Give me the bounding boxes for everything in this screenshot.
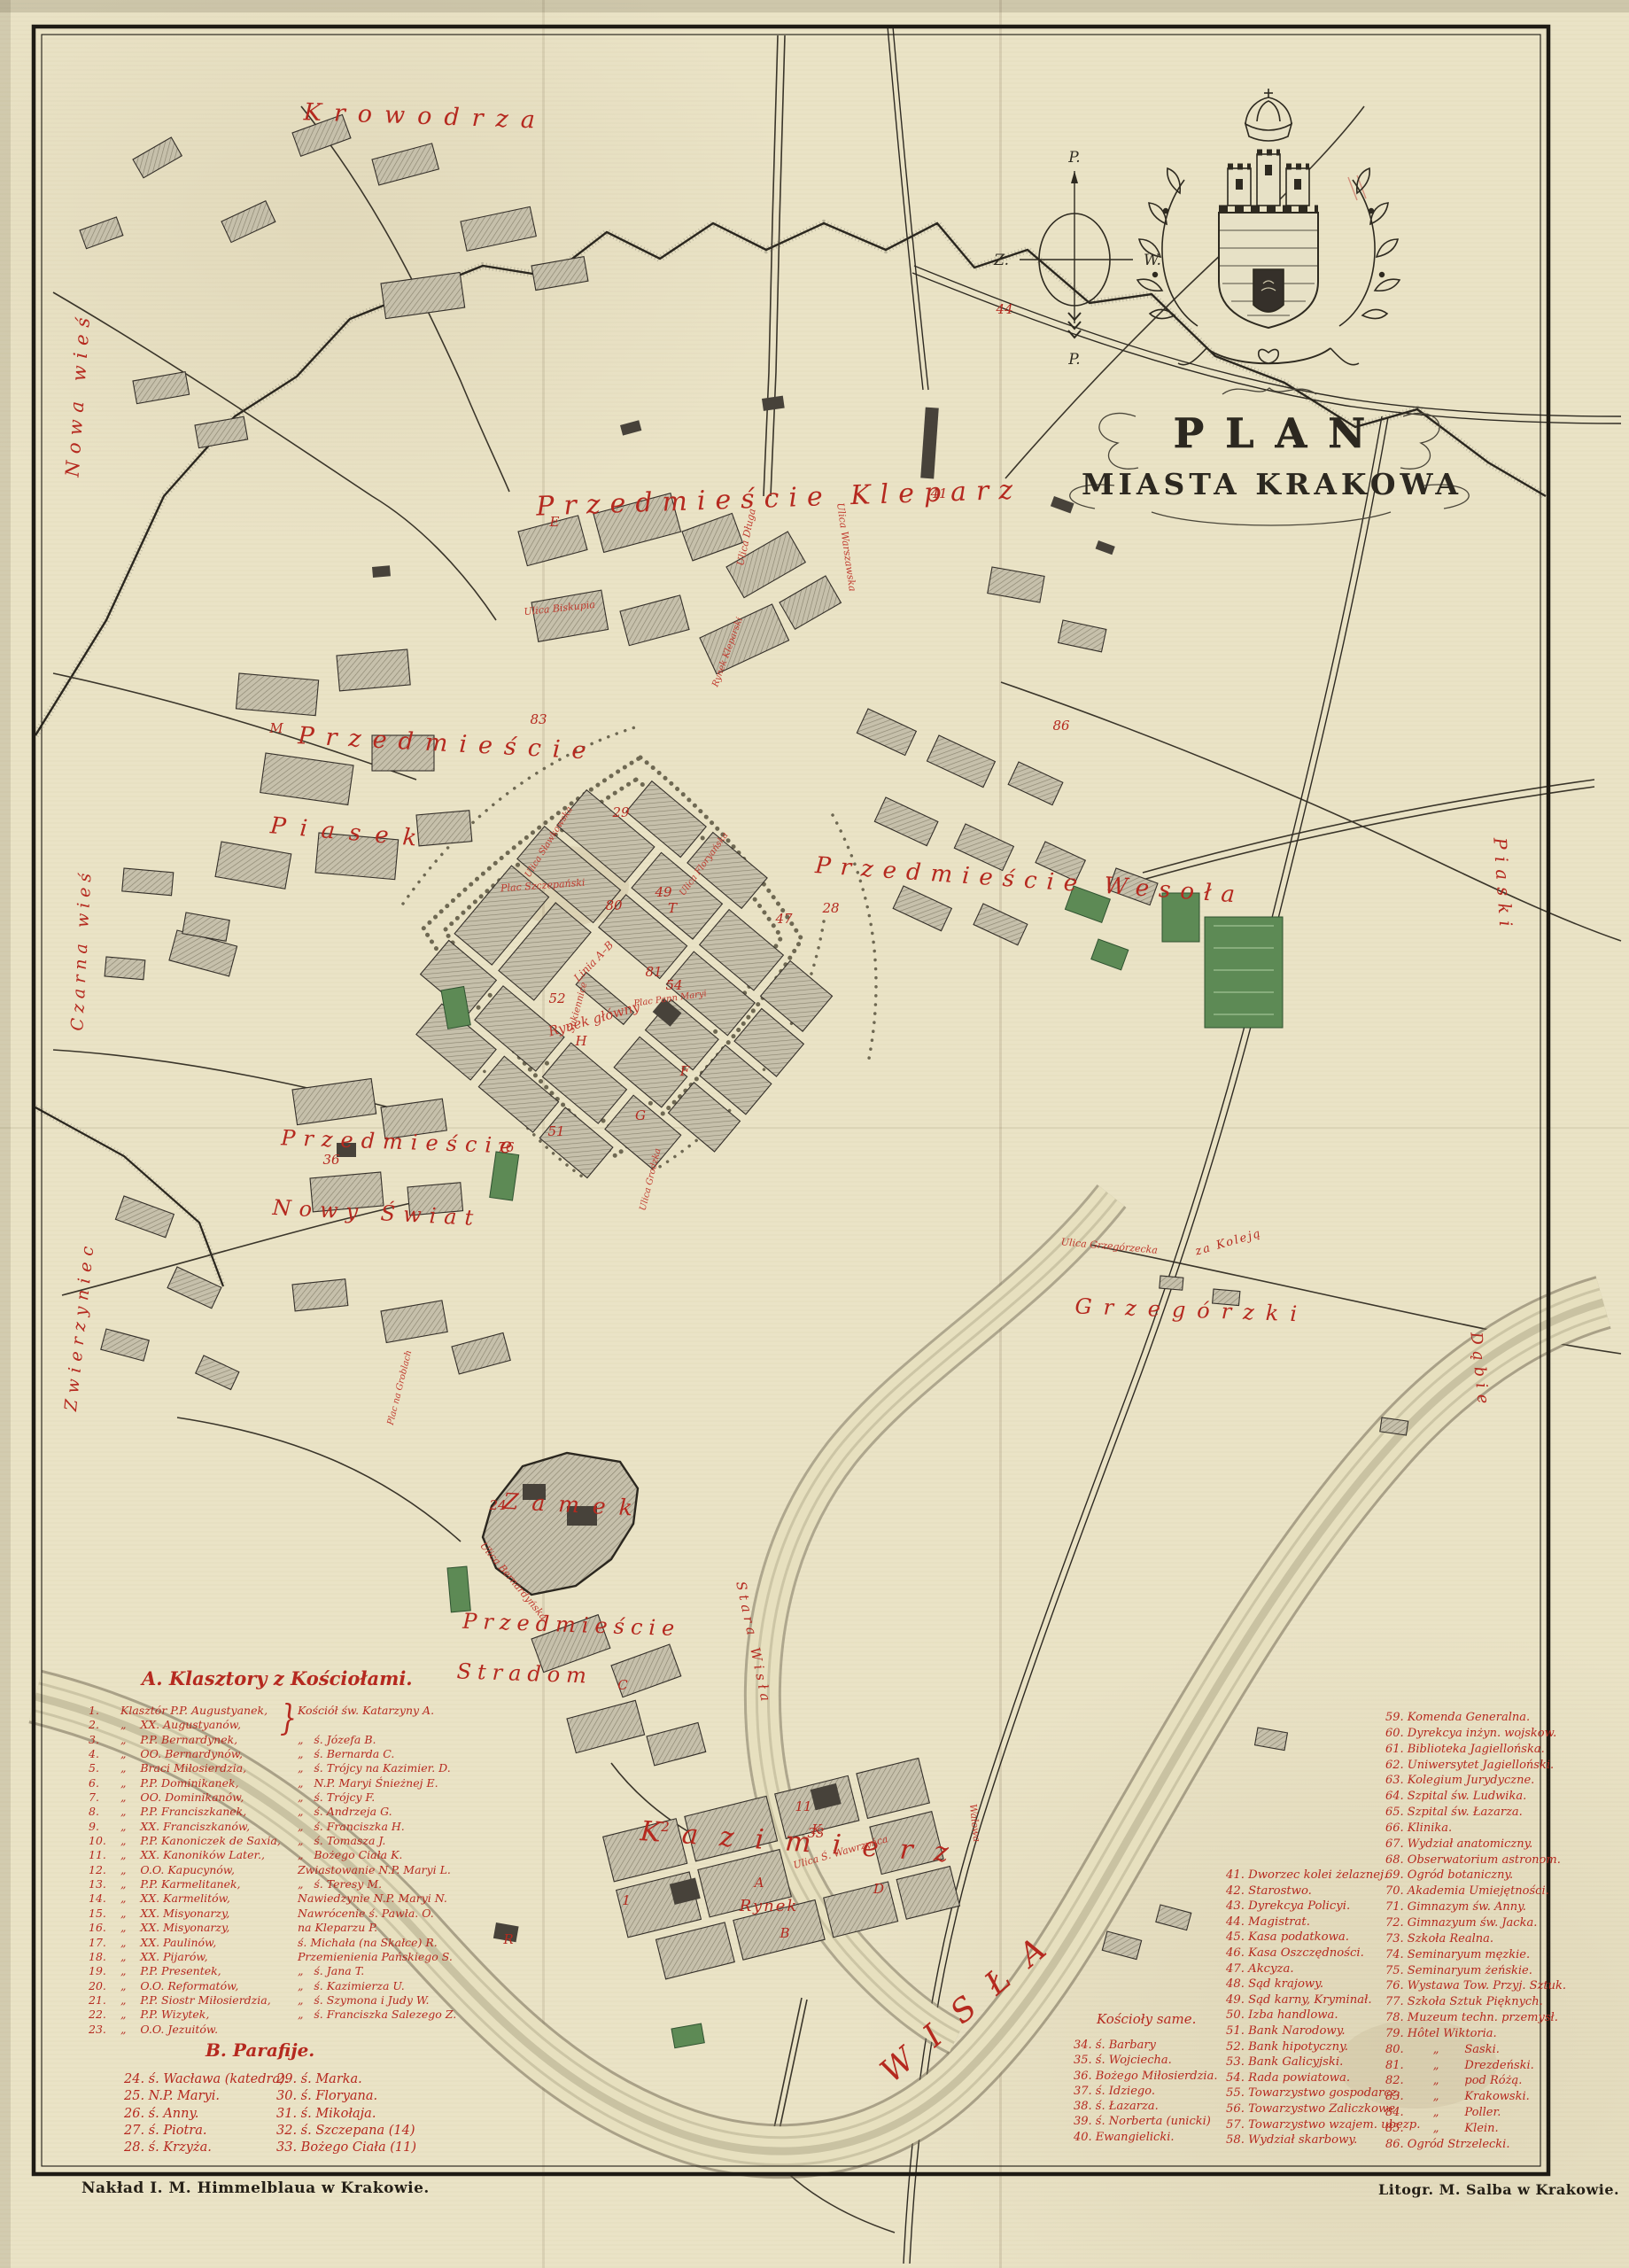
- legend-row-convent: „ O.O. Jezuitów.: [120, 2023, 298, 2037]
- legend-row-convent: „ P.P. Siostr Miłosierdzia,: [120, 1993, 298, 2008]
- legend-row-number: 11.: [89, 1848, 120, 1862]
- legend-item: 29. ś. Marka.: [276, 2071, 416, 2088]
- mark: A: [753, 1875, 764, 1891]
- ribbon-bow: [1178, 348, 1359, 365]
- label-wesola: Przedmieście Wesoła: [813, 852, 1245, 909]
- legend-row-convent: „ OO. Dominikanów,: [120, 1790, 298, 1805]
- legend-item: 61. Biblioteka Jagiellońska.: [1385, 1742, 1566, 1758]
- legend-row: 3. „ P.P. Bernardynek, „ ś. Józefa B.: [89, 1733, 456, 1747]
- legend-row: 16. „ XX. Misyonarzy, na Kleparzu P.: [89, 1921, 456, 1935]
- legend-row: 6. „ P.P. Dominikanek, „ N.P. Maryi Śnie…: [89, 1776, 456, 1790]
- legend-row-convent: „ OO. Bernardynów,: [120, 1747, 298, 1761]
- legend-a-title: A. Klasztory z Kościołami.: [142, 1667, 413, 1689]
- legend-item: 26. ś. Anny.: [124, 2106, 289, 2123]
- legend-row-convent: „ P.P. Kanoniczek de Saxia,: [120, 1834, 298, 1848]
- legend-item: 35. ś. Wojciecha.: [1074, 2053, 1217, 2068]
- imprint-publisher: Nakład I. M. Himmelblaua w Krakowie.: [81, 2179, 430, 2197]
- label-zwierzyniec: Zwierzyniec: [61, 1239, 98, 1413]
- legend-row-convent: „ XX. Karmelitów,: [120, 1891, 298, 1906]
- legend-row: 17. „ XX. Paulinów, ś. Michała (na Skałc…: [89, 1936, 456, 1950]
- legend-row: 21. „ P.P. Siostr Miłosierdzia, „ ś. Szy…: [89, 1993, 456, 2008]
- legend-item: 34. ś. Barbary: [1074, 2038, 1217, 2053]
- label-kleparz: Przedmieście Kleparz: [535, 474, 1023, 522]
- shield: [1219, 152, 1318, 328]
- legend-row-convent: „ P.P. Wizytek,: [120, 2008, 298, 2022]
- legend-row: 11. „ XX. Kanoników Later., „ Bożego Cia…: [89, 1848, 456, 1862]
- legend-row-number: 7.: [89, 1790, 120, 1805]
- legend-row-church: Przemienienia Pańskiego S.: [298, 1950, 456, 1964]
- legend-row: 15. „ XX. Misyonarzy, Nawrócenie ś. Pawł…: [89, 1907, 456, 1921]
- legend-item: 86. Ogród Strzelecki.: [1385, 2137, 1566, 2153]
- label-stradom-2: Stradom: [456, 1658, 593, 1688]
- legend-row-number: 23.: [89, 2023, 120, 2037]
- mark: 86: [1052, 718, 1070, 734]
- legend-row: 2. „ XX. Augustyanów,: [89, 1718, 456, 1732]
- legend-a-list: 1. Klasztór P.P. Augustyanek, Kościół św…: [89, 1704, 456, 2037]
- legend-row-number: 14.: [89, 1891, 120, 1906]
- legend-item: 37. ś. Idziego.: [1074, 2084, 1217, 2099]
- legend-row-number: 4.: [89, 1747, 120, 1761]
- mark: 41: [929, 485, 947, 501]
- legend-row-church: na Kleparzu P.: [298, 1921, 456, 1935]
- legend-row-number: 16.: [89, 1921, 120, 1935]
- legend-item: 28. ś. Krzyża.: [124, 2140, 289, 2156]
- label-ul-warszawska: Ulica Warszawska: [834, 502, 858, 593]
- railway-station-building: [920, 408, 939, 479]
- legend-item: 25. N.P. Maryi.: [124, 2088, 289, 2105]
- legend-item: 74. Seminaryum męzkie.: [1385, 1947, 1566, 1963]
- compass-label-north: P.: [1067, 149, 1080, 167]
- legend-row-convent: „ XX. Franciszkanów,: [120, 1820, 298, 1834]
- label-przedmiescie-piasek: Przedmieście: [297, 722, 599, 765]
- label-plac-na-groblach: Plac na Groblach: [386, 1349, 415, 1427]
- mark: 1: [622, 1892, 631, 1908]
- label-nowa-wies: Nowa wieś: [61, 310, 94, 478]
- label-rynek-kazimierz: Rynek: [739, 1897, 799, 1915]
- label-grzegorzki: Grzegórzki: [1074, 1293, 1308, 1326]
- legend-row-convent: „ O.O. Kapucynów,: [120, 1863, 298, 1877]
- legend-item: 24. ś. Wacława (katedra).: [124, 2071, 289, 2088]
- institutions-list: 59. Komenda Generalna.60. Dyrekcya inżyn…: [1385, 1710, 1566, 2153]
- mark: C: [617, 1677, 628, 1693]
- legend-row-church: Zwiastowanie N.P. Maryi L.: [298, 1863, 456, 1877]
- compass-label-west: Z.: [993, 252, 1009, 269]
- legend-item: 75. Seminaryum żeńskie.: [1385, 1963, 1566, 1979]
- legend-row: 1. Klasztór P.P. Augustyanek, Kościół św…: [89, 1704, 456, 1718]
- legend-row-convent: „ XX. Misyonarzy,: [120, 1921, 298, 1935]
- legend-row: 20. „ O.O. Reformatów, „ ś. Kazimierza U…: [89, 1979, 456, 1993]
- legend-row-church: Kościół św. Katarzyny A.: [298, 1704, 456, 1718]
- legend-row-convent: „ P.P. Dominikanek,: [120, 1776, 298, 1790]
- legend-row-church: „ ś. Trójcy F.: [298, 1790, 456, 1805]
- legend-row-church: „ ś. Szymona i Judy W.: [298, 1993, 456, 2008]
- legend-item: 77. Szkoła Sztuk Pięknych.: [1385, 1994, 1566, 2010]
- mark: 29: [611, 804, 630, 820]
- legend-row-number: 3.: [89, 1733, 120, 1747]
- legend-b-col1: 24. ś. Wacława (katedra).25. N.P. Maryi.…: [124, 2071, 289, 2156]
- legend-item: 79. Hôtel Wiktoria.: [1385, 2026, 1566, 2042]
- legend-row-number: 8.: [89, 1805, 120, 1819]
- label-za-koleja: za Koleją: [1193, 1227, 1264, 1259]
- legend-row: 9. „ XX. Franciszkanów, „ ś. Franciszka …: [89, 1820, 456, 1834]
- legend-item: 36. Bożego Miłosierdzia.: [1074, 2069, 1217, 2084]
- legend-row-number: 22.: [89, 2008, 120, 2022]
- legend-row-convent: „ O.O. Reformatów,: [120, 1979, 298, 1993]
- legend-row-church: „ N.P. Maryi Śnieżnej E.: [298, 1776, 456, 1790]
- legend-item: 81. „ Drezdeński.: [1385, 2058, 1566, 2074]
- legend-row: 22. „ P.P. Wizytek, „ ś. Franciszka Sale…: [89, 2008, 456, 2022]
- legend-row: 14. „ XX. Karmelitów, Nawiedzynie N.P. M…: [89, 1891, 456, 1906]
- legend-row-church: „ ś. Bernarda C.: [298, 1747, 456, 1761]
- legend-row-church: „ ś. Teresy M.: [298, 1877, 456, 1891]
- legend-item: 85. „ Klein.: [1385, 2121, 1566, 2137]
- legend-item: 33. Bożego Ciała (11): [276, 2140, 416, 2156]
- legend-row-number: 20.: [89, 1979, 120, 1993]
- legend-item: 80. „ Saski.: [1385, 2042, 1566, 2058]
- legend-row: 13. „ P.P. Karmelitanek, „ ś. Teresy M.: [89, 1877, 456, 1891]
- legend-row-church: „ ś. Trójcy na Kazimier. D.: [298, 1761, 456, 1775]
- legend-item: 32. ś. Szczepana (14): [276, 2123, 416, 2140]
- legend-row-church: „ ś. Franciszka Salezego Z.: [298, 2008, 456, 2022]
- mark: R: [502, 1931, 513, 1947]
- legend-item: 76. Wystawa Tow. Przyj. Sztuk.: [1385, 1978, 1566, 1994]
- legend-row-church: „ Bożego Ciała K.: [298, 1848, 456, 1862]
- legend-row-convent: „ Braci Miłosierdzia,: [120, 1761, 298, 1775]
- legend-item: 67. Wydział anatomiczny.: [1385, 1837, 1566, 1852]
- legend-row-church: [298, 2023, 456, 2037]
- legend-row-number: 18.: [89, 1950, 120, 1964]
- mark: 81: [645, 964, 662, 980]
- legend-row-church: Nawrócenie ś. Pawła. O.: [298, 1907, 456, 1921]
- mark: 24: [488, 1497, 506, 1513]
- map-title: PLAN: [1174, 409, 1387, 457]
- legend-item: 40. Ewangielicki.: [1074, 2130, 1217, 2145]
- legend-row-number: 12.: [89, 1863, 120, 1877]
- legend-item: 63. Kolegium Jurydyczne.: [1385, 1773, 1566, 1789]
- legend-row-number: 6.: [89, 1776, 120, 1790]
- mark: M: [268, 720, 283, 736]
- mark: 47: [774, 911, 793, 927]
- label-ul-walowa: Wałowa: [967, 1804, 982, 1843]
- legend-row-convent: „ P.P. Franciszkanek,: [120, 1805, 298, 1819]
- legend-row-church: Nawiedzynie N.P. Maryi N.: [298, 1891, 456, 1906]
- legend-row-convent: „ XX. Kanoników Later.,: [120, 1848, 298, 1862]
- label-czarna-wies: Czarna wieś: [67, 867, 96, 1031]
- label-przedmiescie-2: Przedmieście: [280, 1125, 521, 1158]
- crown-icon: [1245, 89, 1292, 141]
- legend-row-convent: „ P.P. Karmelitanek,: [120, 1877, 298, 1891]
- legend-item: 82. „ pod Różą.: [1385, 2073, 1566, 2089]
- mark: D: [873, 1881, 884, 1897]
- legend-item: 39. ś. Norberta (unicki): [1074, 2114, 1217, 2129]
- legend-item: 31. ś. Mikołaja.: [276, 2106, 416, 2123]
- legend-row-number: 9.: [89, 1820, 120, 1834]
- legend-item: 66. Klinika.: [1385, 1821, 1566, 1837]
- compass-rose: P. Z. W. P.: [993, 149, 1161, 369]
- legend-row: 18. „ XX. Pijarów, Przemienienia Pańskie…: [89, 1950, 456, 1964]
- legend-item: 84. „ Poller.: [1385, 2105, 1566, 2121]
- title-block: PLAN MIASTA KRAKOWA: [1070, 388, 1470, 525]
- koscioly-list: 34. ś. Barbary35. ś. Wojciecha.36. Bożeg…: [1074, 2038, 1217, 2145]
- legend-row-church: ś. Michała (na Skałce) R.: [298, 1936, 456, 1950]
- legend-b-title: B. Parafije.: [206, 2039, 314, 2061]
- wesola-blocks: [857, 709, 1158, 945]
- mark: 80: [605, 897, 623, 913]
- legend-row: 5. „ Braci Miłosierdzia, „ ś. Trójcy na …: [89, 1761, 456, 1775]
- legend-row-number: 21.: [89, 1993, 120, 2008]
- gate-with-eagle: [1253, 269, 1284, 312]
- legend-row-convent: „ XX. Paulinów,: [120, 1936, 298, 1950]
- legend-row-church: „ ś. Kazimierza U.: [298, 1979, 456, 1993]
- legend-row-number: 10.: [89, 1834, 120, 1848]
- legend-item: 62. Uniwersytet Jagielloński.: [1385, 1758, 1566, 1774]
- mark: 28: [821, 900, 839, 916]
- mark: G: [635, 1107, 646, 1123]
- legend-row-church: „ ś. Andrzeja G.: [298, 1805, 456, 1819]
- legend-row: 7. „ OO. Dominikanów, „ ś. Trójcy F.: [89, 1790, 456, 1805]
- mark: 52: [548, 990, 565, 1006]
- compass-label-south: P.: [1067, 351, 1080, 369]
- compass-north-arrow: [1071, 171, 1078, 183]
- imprint-lithographer: Litogr. M. Salba w Krakowie.: [1378, 2181, 1619, 2198]
- mark: T: [668, 900, 678, 916]
- legend-item: 64. Szpital św. Ludwika.: [1385, 1789, 1566, 1805]
- mark: 11: [795, 1798, 811, 1814]
- mark: 44: [995, 301, 1012, 317]
- legend-row: 10. „ P.P. Kanoniczek de Saxia, „ ś. Tom…: [89, 1834, 456, 1848]
- legend-row-church: „ ś. Jana T.: [298, 1964, 456, 1978]
- mark: 54: [665, 977, 682, 993]
- legend-item: 30. ś. Floryana.: [276, 2088, 416, 2105]
- legend-item: 59. Komenda Generalna.: [1385, 1710, 1566, 1726]
- legend-row-church: „ ś. Franciszka H.: [298, 1820, 456, 1834]
- koscioly-title: Kościoły same.: [1097, 2011, 1196, 2027]
- legend-item: 78. Muzeum techn. przemysł.: [1385, 2010, 1566, 2026]
- legend-row: 23. „ O.O. Jezuitów.: [89, 2023, 456, 2037]
- legend-item: 83. „ Krakowski.: [1385, 2089, 1566, 2105]
- mark: 36: [322, 1152, 340, 1168]
- legend-row-convent: Klasztór P.P. Augustyanek,: [120, 1704, 298, 1718]
- label-piaski: Piaski: [1489, 836, 1517, 935]
- legend-row: 19. „ P.P. Presentek, „ ś. Jana T.: [89, 1964, 456, 1978]
- legend-row-convent: „ P.P. Bernardynek,: [120, 1733, 298, 1747]
- legend-row-number: 13.: [89, 1877, 120, 1891]
- legend-row-convent: „ XX. Augustyanów,: [120, 1718, 298, 1732]
- legend-item: 38. ś. Łazarza.: [1074, 2099, 1217, 2114]
- mark: E: [549, 514, 560, 530]
- map-sheet: P. Z. W. P.: [0, 0, 1629, 2268]
- legend-row-convent: „ XX. Pijarów,: [120, 1950, 298, 1964]
- legend-row-number: 15.: [89, 1907, 120, 1921]
- legend-row-church: „ ś. Józefa B.: [298, 1733, 456, 1747]
- legend-item: 71. Gimnazym św. Anny.: [1385, 1899, 1566, 1915]
- legend-row-number: 2.: [89, 1718, 120, 1732]
- legend-item: 27. ś. Piotra.: [124, 2123, 289, 2140]
- mark: 51: [547, 1123, 564, 1139]
- mark: B: [779, 1925, 789, 1941]
- legend-row-number: 17.: [89, 1936, 120, 1950]
- legend-row-convent: „ XX. Misyonarzy,: [120, 1907, 298, 1921]
- legend-row: 4. „ OO. Bernardynów, „ ś. Bernarda C.: [89, 1747, 456, 1761]
- legend-row-number: 19.: [89, 1964, 120, 1978]
- map-subtitle: MIASTA KRAKOWA: [1082, 467, 1462, 501]
- legend-item: 73. Szkoła Realna.: [1385, 1931, 1566, 1947]
- legend-item: 65. Szpital św. Łazarza.: [1385, 1805, 1566, 1821]
- legend-item: 60. Dyrekcya inżyn. wojskow.: [1385, 1726, 1566, 1742]
- mark: F: [679, 1063, 690, 1079]
- mark: 76: [497, 1139, 515, 1155]
- legend-row-convent: „ P.P. Presentek,: [120, 1964, 298, 1978]
- legend-row-number: 5.: [89, 1761, 120, 1775]
- label-stradom-1: Przedmieście: [462, 1609, 681, 1642]
- legend-row-church: [298, 1718, 456, 1732]
- legend-row: 8. „ P.P. Franciszkanek, „ ś. Andrzeja G…: [89, 1805, 456, 1819]
- legend-row-number: 1.: [89, 1704, 120, 1718]
- legend-b-col2: 29. ś. Marka.30. ś. Floryana.31. ś. Miko…: [276, 2071, 416, 2156]
- mark: H: [574, 1033, 587, 1049]
- legend-row-church: „ ś. Tomasza J.: [298, 1834, 456, 1848]
- legend-row: 12. „ O.O. Kapucynów, Zwiastowanie N.P. …: [89, 1863, 456, 1877]
- mark: K: [811, 1821, 822, 1837]
- legend-item: 70. Akademia Umiejętności.: [1385, 1884, 1566, 1899]
- legend-item: 72. Gimnazyum św. Jacka.: [1385, 1915, 1566, 1931]
- mark: 2: [660, 1819, 670, 1835]
- mark: 83: [530, 711, 547, 727]
- legend-item: 69. Ogród botaniczny.: [1385, 1868, 1566, 1884]
- legend-item: 68. Obserwatorium astronom.: [1385, 1852, 1566, 1868]
- mark: 49: [654, 884, 672, 900]
